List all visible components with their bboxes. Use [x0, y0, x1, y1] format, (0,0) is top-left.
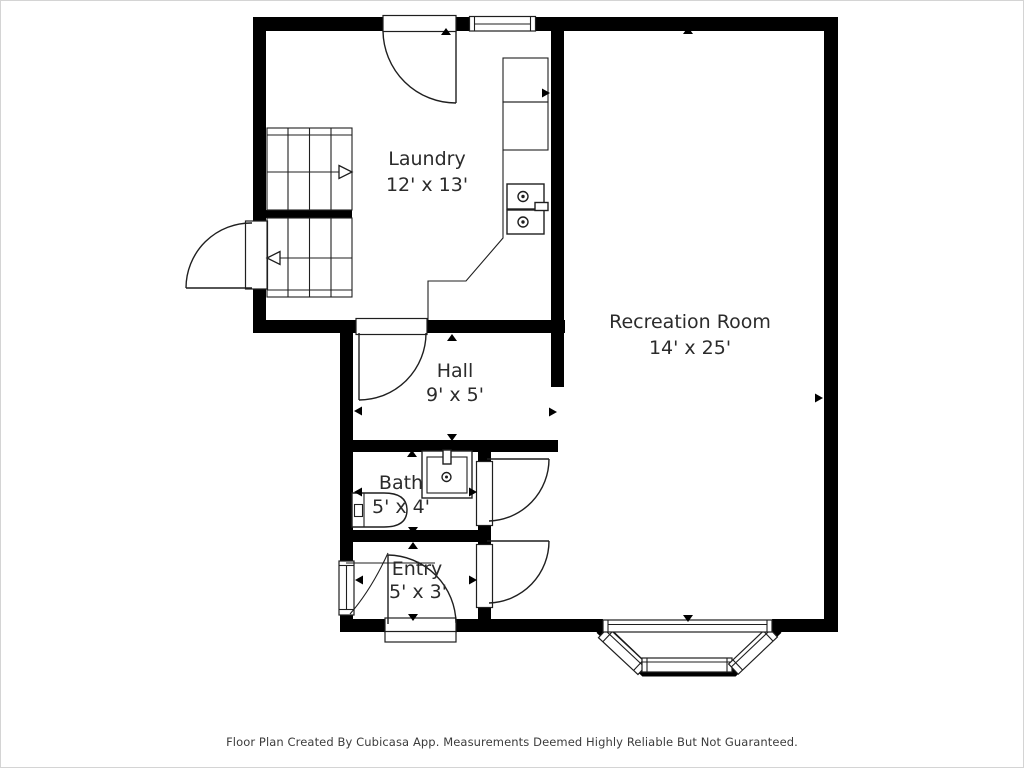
hall-door-arc — [359, 333, 426, 400]
entry-swing-arc — [350, 553, 388, 614]
bath-door — [487, 459, 549, 521]
bay-window-bottom-glass — [642, 658, 732, 672]
recreation-label: Recreation Room — [609, 311, 771, 333]
bay-window-bottom — [642, 658, 732, 672]
laundry-window — [470, 17, 536, 32]
washer-knob-dot — [521, 195, 524, 198]
exterior-door — [186, 223, 252, 288]
laundry-door — [383, 31, 456, 103]
bath-sink — [422, 450, 472, 498]
laundry-dims: 12' x 13' — [386, 174, 468, 196]
entry-label: Entry — [392, 558, 443, 580]
stairs-down-arrow-icon — [267, 252, 280, 265]
entry-side-window — [339, 561, 354, 615]
hall-door-opening — [356, 319, 427, 335]
hall-dims: 9' x 5' — [426, 384, 484, 406]
laundry-door-arc — [383, 31, 456, 103]
wall-bath-entry — [340, 530, 490, 542]
entry-east-door — [487, 541, 549, 603]
stairs-lower-flight — [267, 218, 352, 297]
laundry-cabinet-lower — [503, 102, 548, 150]
hall-label: Hall — [437, 360, 474, 382]
entry-east-door-arc — [489, 541, 549, 603]
footer-disclaimer: Floor Plan Created By Cubicasa App. Meas… — [0, 735, 1024, 749]
bath-door-arc — [489, 459, 549, 521]
bay-window-right — [729, 627, 778, 674]
entry-east-door-opening — [477, 545, 493, 608]
bay-window-left-glass — [598, 627, 647, 674]
recreation-dims: 14' x 25' — [649, 337, 731, 359]
wall-stair-divider — [265, 210, 352, 218]
bay-window-right-glass — [729, 627, 778, 674]
wall-top — [253, 17, 838, 31]
bath-door-opening — [477, 462, 493, 526]
entry-dims: 5' x 3' — [389, 581, 447, 603]
bay-window-main-glass — [603, 620, 772, 632]
front-door-threshold — [385, 632, 456, 643]
wall-bottom — [340, 619, 603, 632]
stairs-upper-flight — [267, 128, 352, 210]
hall-door — [359, 333, 426, 400]
bay-window — [598, 620, 777, 675]
appliance-handle — [535, 203, 548, 211]
wall-right — [824, 17, 838, 632]
sink-drain-dot — [445, 476, 448, 479]
sink-faucet-icon — [443, 450, 451, 464]
exterior-door-arc — [186, 223, 252, 288]
bay-window-left — [598, 627, 647, 674]
laundry-label: Laundry — [388, 148, 465, 170]
laundry-cabinet-upper — [503, 58, 548, 102]
stairs-up-arrow-icon — [339, 166, 352, 179]
floor-plan-svg: Laundry 12' x 13' Recreation Room 14' x … — [0, 0, 1024, 768]
bath-label: Bath — [379, 472, 423, 494]
bay-window-main — [603, 620, 772, 632]
laundry-door-opening — [383, 16, 456, 32]
floor-plan-page: Laundry 12' x 13' Recreation Room 14' x … — [0, 0, 1024, 768]
front-door-opening — [385, 618, 456, 633]
wall-laundry-recreation — [551, 31, 564, 387]
dryer-knob-dot — [521, 220, 524, 223]
bath-dims: 5' x 4' — [372, 496, 430, 518]
exterior-door-opening — [246, 221, 268, 289]
wall-bottom-right — [772, 619, 838, 632]
